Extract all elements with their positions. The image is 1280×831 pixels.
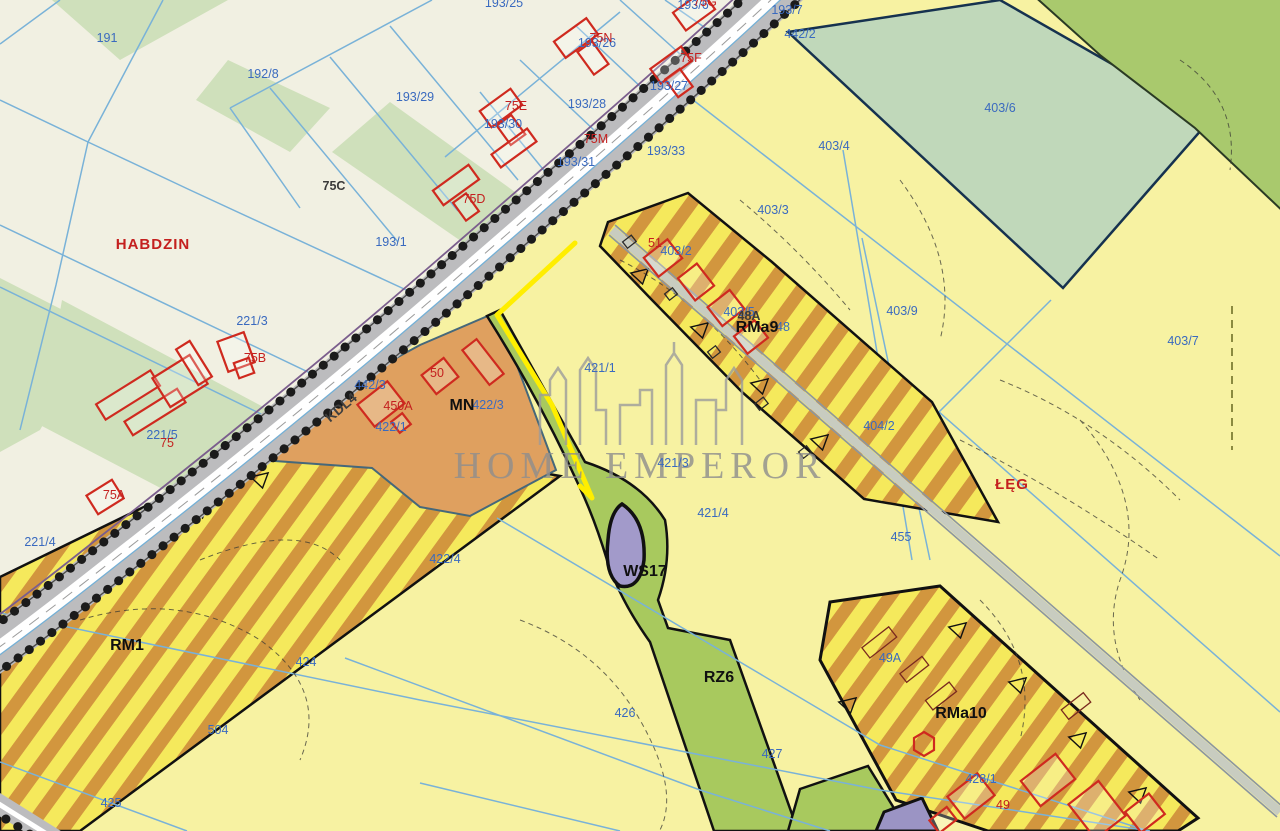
label-426: 426: [615, 706, 636, 720]
label-421/3: 421/3: [657, 456, 688, 470]
label-421/4: 421/4: [697, 506, 728, 520]
label-442/2: 442/2: [784, 27, 815, 41]
label-75A: 75A: [103, 488, 126, 502]
label-193/7: 193/7: [771, 3, 802, 17]
label-RMa10: RMa10: [935, 705, 987, 722]
label-75N: 75N: [590, 31, 613, 45]
label-75D: 75D: [463, 192, 486, 206]
label-193/30: 193/30: [484, 117, 522, 131]
label-403/3: 403/3: [757, 203, 788, 217]
label-422/1: 422/1: [375, 420, 406, 434]
label-193/29: 193/29: [396, 90, 434, 104]
label-421/1: 421/1: [584, 361, 615, 375]
label-422/3: 422/3: [472, 398, 503, 412]
label-504: 504: [208, 723, 229, 737]
label-193/25: 193/25: [485, 0, 523, 10]
label-403/2: 403/2: [660, 244, 691, 258]
label-193/28: 193/28: [568, 97, 606, 111]
label-424: 424: [296, 655, 317, 669]
label-75E: 75E: [505, 99, 527, 113]
label-75: 75: [160, 436, 174, 450]
label-RMa9: RMa9: [736, 319, 779, 336]
label-425: 425: [101, 796, 122, 810]
label-193/1: 193/1: [375, 235, 406, 249]
label-404/2: 404/2: [863, 419, 894, 433]
label-193/27: 193/27: [650, 79, 688, 93]
label-193/31: 193/31: [557, 155, 595, 169]
label-427: 427: [762, 747, 783, 761]
label-RM1: RM1: [110, 637, 144, 654]
zoning-map-canvas[interactable]: HOME EMPEROR 191192/8193/29193/25193/261…: [0, 0, 1280, 831]
label-221/4: 221/4: [24, 535, 55, 549]
label-403/7: 403/7: [1167, 334, 1198, 348]
label-49A: 49A: [879, 651, 902, 665]
label-422/4: 422/4: [429, 552, 460, 566]
label-50: 50: [430, 366, 444, 380]
label-403/4: 403/4: [818, 139, 849, 153]
label-403/6: 403/6: [984, 101, 1015, 115]
label-75C: 75C: [323, 179, 346, 193]
watermark-text: HOME EMPEROR: [454, 445, 827, 487]
label-75G: 75G: [693, 0, 717, 9]
label-75F: 75F: [680, 51, 702, 65]
label-455: 455: [891, 530, 912, 544]
label-428/1: 428/1: [965, 772, 996, 786]
label-MN: MN: [450, 397, 475, 414]
label-RZ6: RZ6: [704, 669, 734, 686]
label-192/8: 192/8: [247, 67, 278, 81]
label-191: 191: [97, 31, 118, 45]
label-HABDZIN: HABDZIN: [116, 236, 191, 253]
label-193/33: 193/33: [647, 144, 685, 158]
label-403/9: 403/9: [886, 304, 917, 318]
label-49: 49: [996, 798, 1010, 812]
label-442/3: 442/3: [354, 378, 385, 392]
label-ŁĘG: ŁĘG: [995, 476, 1029, 493]
label-450A: 450A: [383, 399, 413, 413]
label-51: 51: [648, 236, 662, 250]
label-75M: 75M: [584, 132, 608, 146]
label-221/3: 221/3: [236, 314, 267, 328]
zoning-map-page: HOME EMPEROR 191192/8193/29193/25193/261…: [0, 0, 1280, 831]
label-75B: 75B: [244, 351, 266, 365]
label-WS17: WS17: [623, 563, 667, 580]
